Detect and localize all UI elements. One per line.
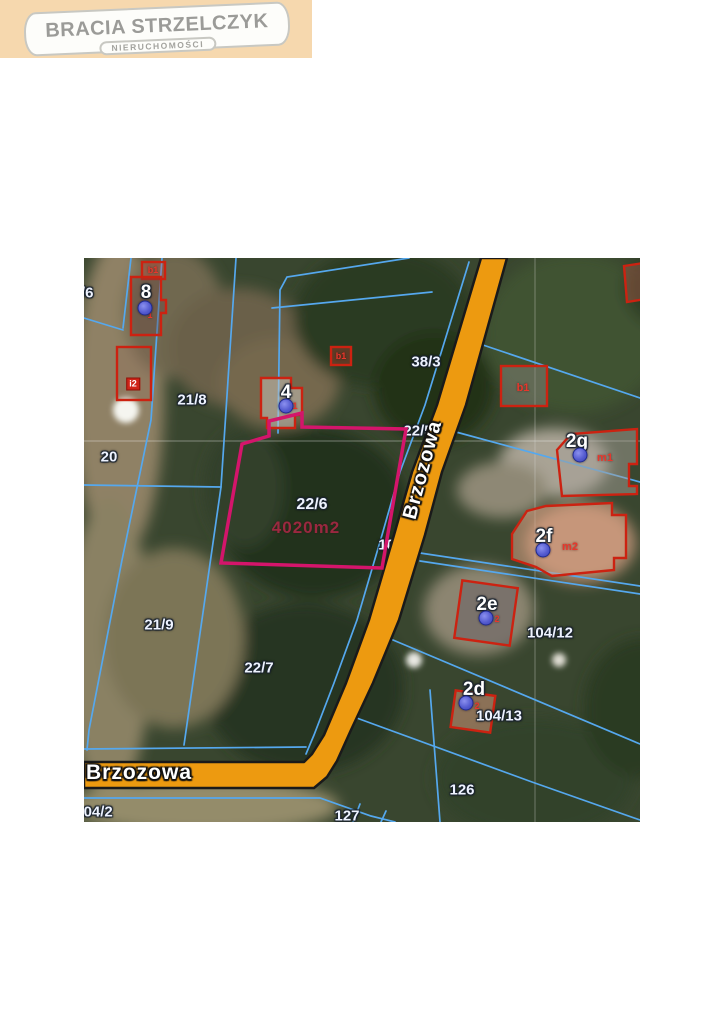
highlighted-parcel-outline xyxy=(221,413,406,568)
building-topright-partial xyxy=(624,262,640,302)
building-2g xyxy=(557,429,637,496)
logo-banner: BRACIA STRZELCZYK NIERUCHOMOŚCI xyxy=(23,1,291,57)
overlay-layer xyxy=(84,258,640,822)
cadastral-aerial-map: 22/5 104/9 Brzozowa Brzozowa 9/6 21/8 xyxy=(84,258,640,822)
building-8 xyxy=(131,277,166,335)
building-2f xyxy=(512,503,626,576)
building-2d xyxy=(451,690,496,732)
road-brzozowa xyxy=(84,258,507,788)
building-b1-right xyxy=(501,366,547,406)
logo-title: BRACIA STRZELCZYK xyxy=(45,10,269,43)
logo-subtitle: NIERUCHOMOŚCI xyxy=(99,36,216,55)
building-2e xyxy=(454,580,518,645)
building-b1-mid xyxy=(331,347,351,365)
building-4 xyxy=(261,378,302,428)
page: { "logo": { "title": "BRACIA STRZELCZYK"… xyxy=(0,0,724,1024)
logo-bar: BRACIA STRZELCZYK NIERUCHOMOŚCI xyxy=(0,0,312,58)
building-i2 xyxy=(117,347,151,400)
